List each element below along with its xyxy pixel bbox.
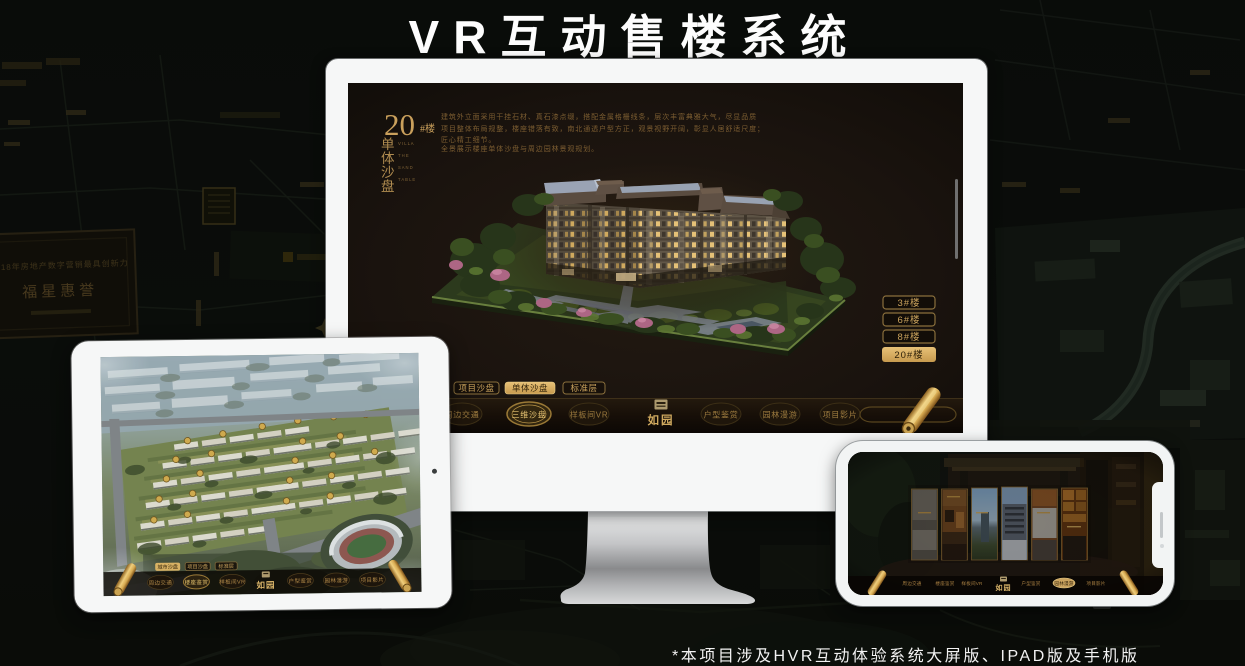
- svg-text:户型鉴赏: 户型鉴赏: [1021, 580, 1040, 587]
- svg-text:6#楼: 6#楼: [897, 314, 920, 326]
- svg-text:标准层: 标准层: [218, 562, 234, 570]
- svg-text:如园: 如园: [648, 413, 675, 427]
- svg-text:T A B L E: T A B L E: [398, 177, 415, 182]
- svg-text:#楼: #楼: [420, 122, 435, 135]
- svg-text:如园: 如园: [996, 583, 1012, 592]
- svg-text:标准层: 标准层: [570, 383, 597, 393]
- svg-text:城市沙盘: 城市沙盘: [157, 563, 178, 571]
- svg-text:楼座鉴赏: 楼座鉴赏: [935, 580, 954, 587]
- svg-text:项目影片: 项目影片: [823, 410, 858, 420]
- svg-text:周边交通: 周边交通: [902, 580, 921, 587]
- svg-text:园林漫游: 园林漫游: [763, 410, 798, 420]
- svg-text:体: 体: [381, 151, 395, 166]
- svg-text:匠心精工细节。: 匠心精工细节。: [441, 135, 496, 144]
- svg-text:V I L L A: V I L L A: [398, 141, 414, 146]
- svg-text:项目整体布局规整，楼座错落有致，南北通透户型方正，观景视野开: 项目整体布局规整，楼座错落有致，南北通透户型方正，观景视野开阔，彰显人居舒适尺度…: [441, 124, 765, 133]
- svg-text:周边交通: 周边交通: [445, 410, 480, 420]
- svg-text:如园: 如园: [256, 580, 275, 590]
- svg-text:T H E: T H E: [398, 153, 409, 158]
- svg-text:沙: 沙: [381, 165, 395, 180]
- svg-text:8#楼: 8#楼: [897, 331, 920, 343]
- svg-text:三维沙盘: 三维沙盘: [512, 410, 547, 420]
- svg-text:样板间VR: 样板间VR: [961, 580, 983, 587]
- svg-text:单: 单: [381, 137, 395, 152]
- svg-text:S A N D: S A N D: [398, 165, 413, 170]
- svg-text:全景展示楼座单体沙盘与周边园林景观规划。: 全景展示楼座单体沙盘与周边园林景观规划。: [441, 144, 599, 153]
- svg-text:园林漫游: 园林漫游: [1054, 580, 1073, 587]
- svg-text:项目沙盘: 项目沙盘: [458, 383, 494, 393]
- svg-text:项目沙盘: 项目沙盘: [187, 562, 208, 570]
- svg-text:盘: 盘: [381, 178, 395, 194]
- svg-text:3#楼: 3#楼: [897, 297, 920, 309]
- svg-text:样板间VR: 样板间VR: [570, 410, 609, 420]
- svg-text:建筑外立面采用干挂石材、真石漆点缀，搭配金属格栅线条，层次丰: 建筑外立面采用干挂石材、真石漆点缀，搭配金属格栅线条，层次丰富典雅大气，尽显品质: [441, 112, 757, 121]
- svg-text:20#楼: 20#楼: [894, 349, 923, 361]
- svg-text:单体沙盘: 单体沙盘: [512, 383, 548, 393]
- svg-text:项目影片: 项目影片: [1086, 580, 1105, 587]
- svg-text:户型鉴赏: 户型鉴赏: [704, 410, 739, 420]
